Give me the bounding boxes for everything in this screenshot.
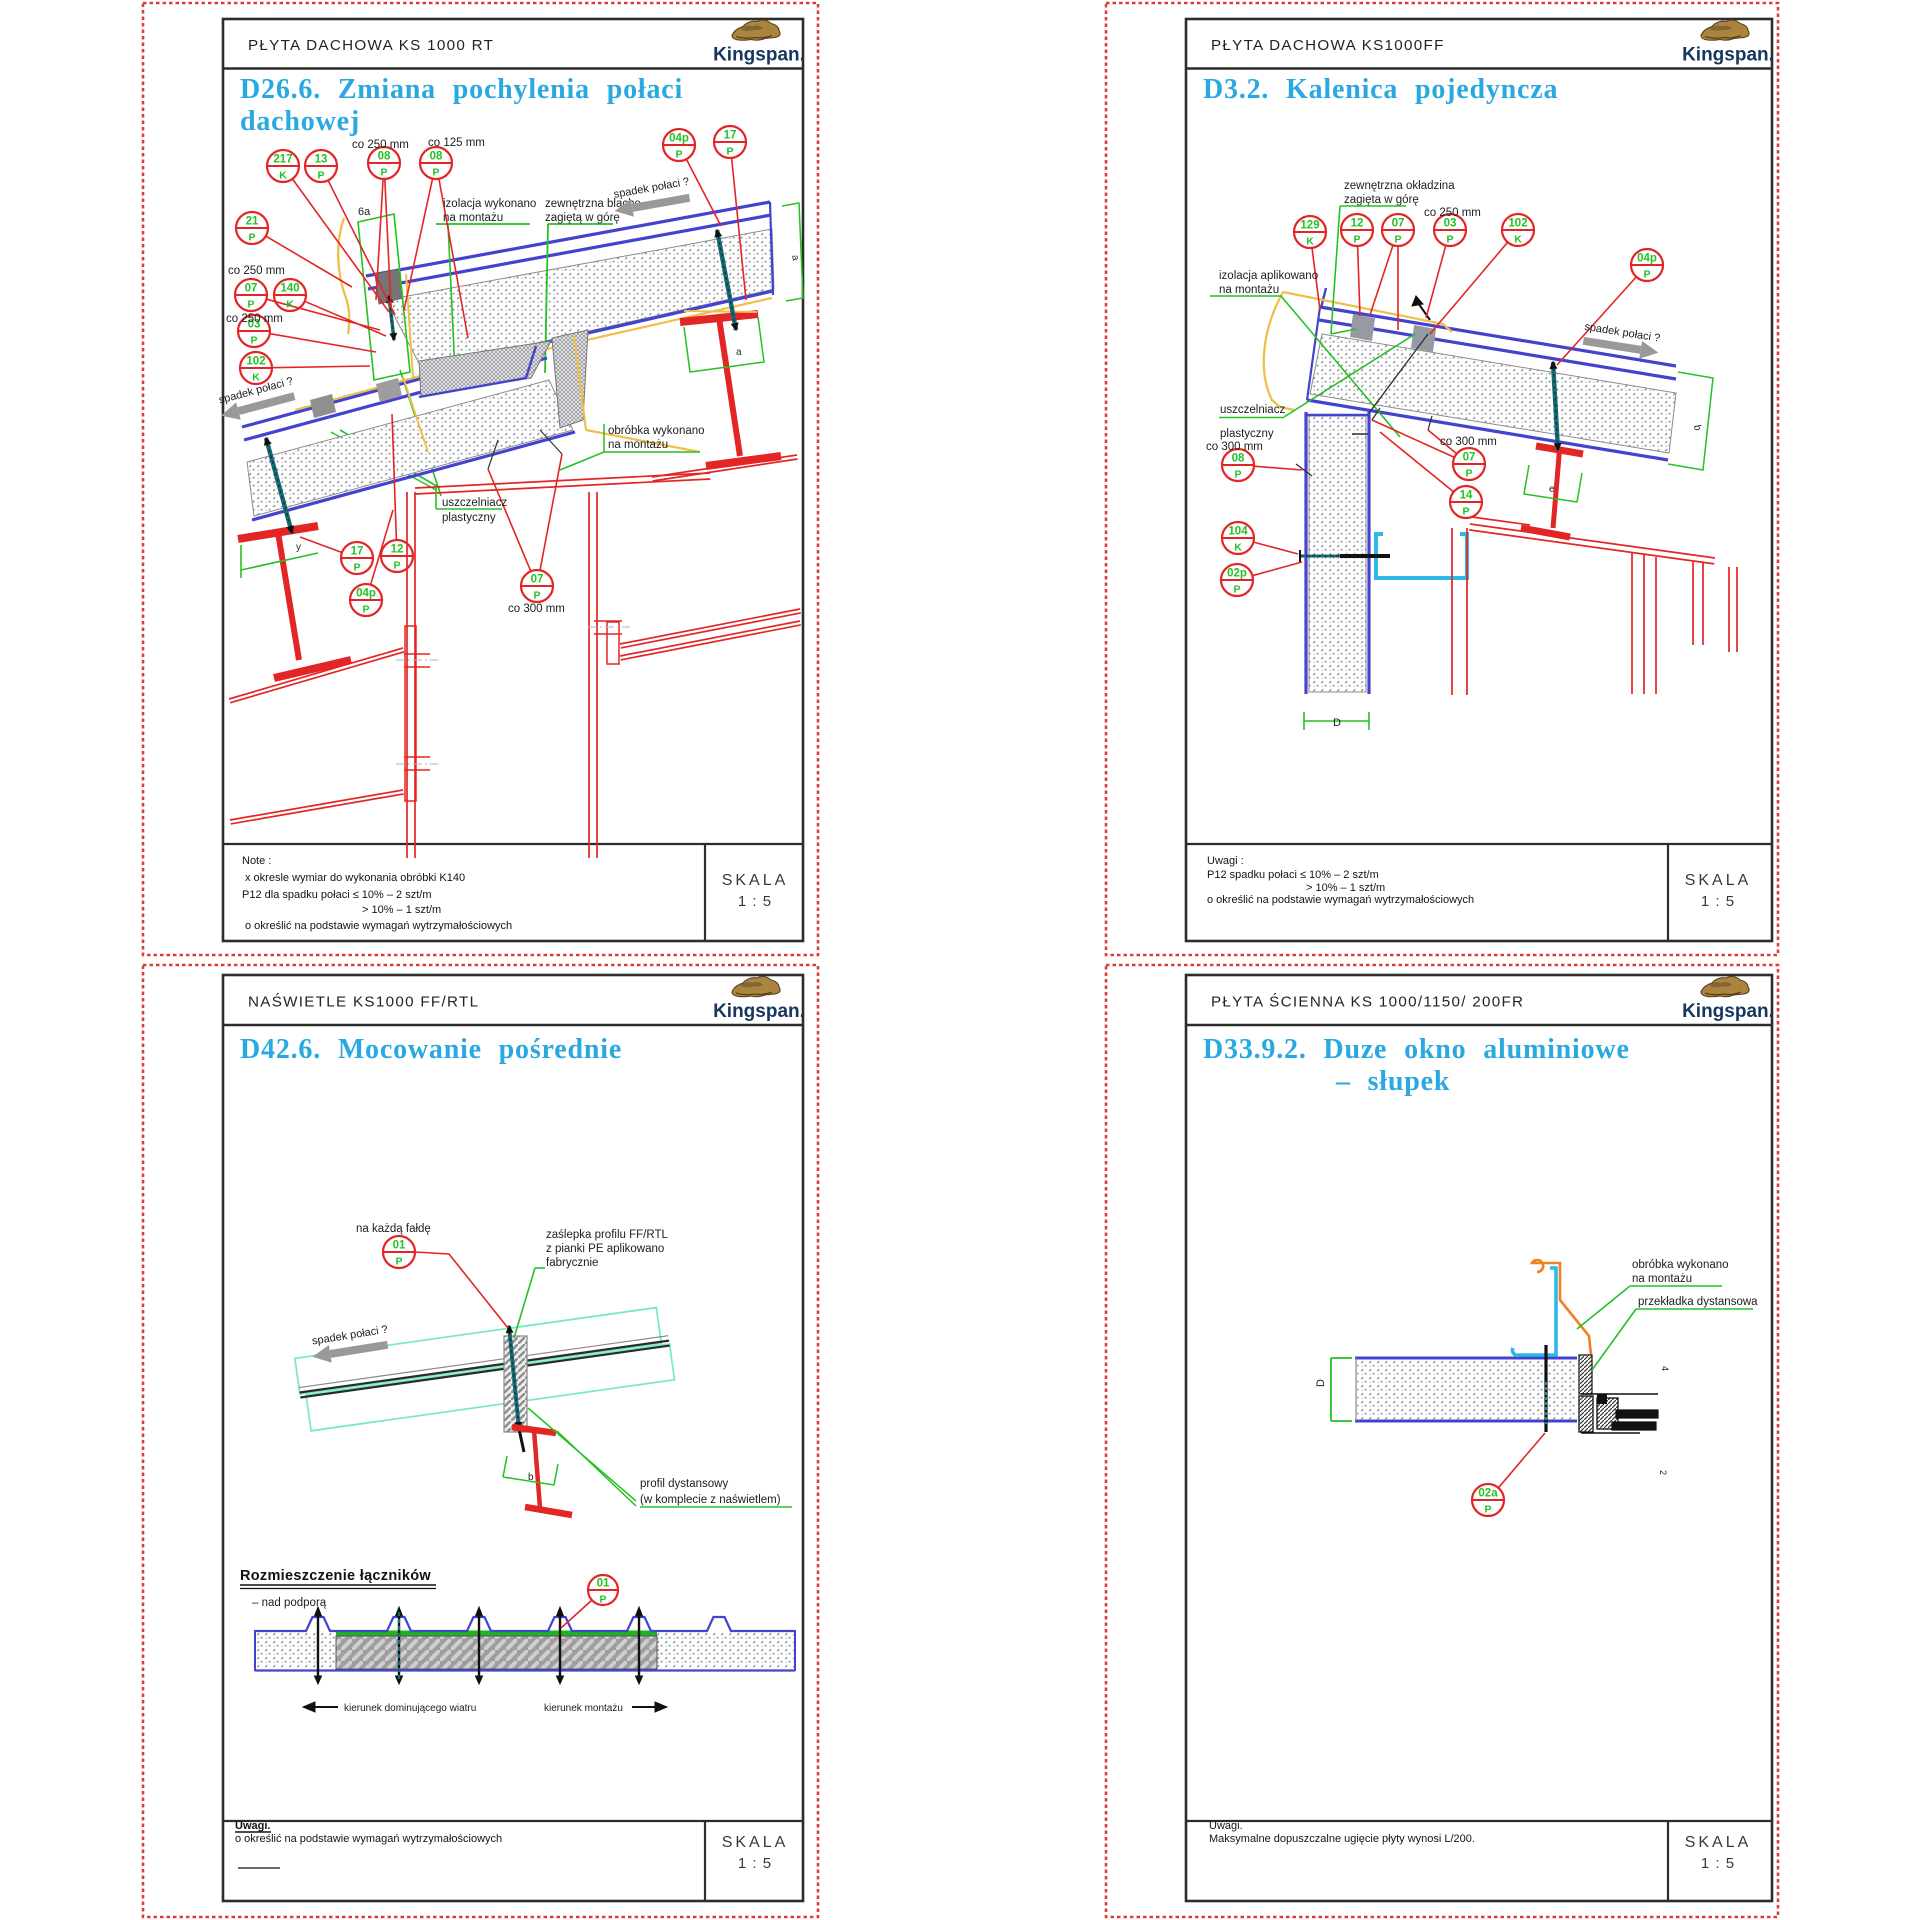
svg-text:– słupek: – słupek [1335, 1066, 1450, 1097]
svg-text:na montażu: na montażu [608, 439, 668, 451]
svg-text:04p: 04p [356, 588, 376, 600]
svg-text:zewnętrzna okładzina: zewnętrzna okładzina [1344, 180, 1455, 192]
svg-text:na każdą fałdę: na każdą fałdę [356, 1223, 431, 1235]
svg-text:17: 17 [724, 130, 737, 142]
svg-text:izolacja wykonano: izolacja wykonano [443, 198, 536, 210]
svg-text:P: P [1643, 269, 1650, 281]
svg-text:217: 217 [273, 154, 292, 166]
svg-text:(w komplecie z naświetlem): (w komplecie z naświetlem) [640, 1494, 781, 1506]
svg-text:SKALA: SKALA [1685, 872, 1752, 889]
svg-text:D: D [1333, 717, 1341, 729]
svg-text:NAŚWIETLE KS1000 FF/RTL: NAŚWIETLE KS1000 FF/RTL [248, 993, 479, 1011]
svg-text:Kingspan.: Kingspan. [1682, 1001, 1774, 1022]
svg-text:08: 08 [1232, 453, 1245, 465]
svg-text:4: 4 [1660, 1366, 1670, 1371]
svg-text:03: 03 [1444, 218, 1457, 230]
svg-text:uszczelniacz: uszczelniacz [442, 497, 507, 509]
svg-text:SKALA: SKALA [1685, 1834, 1752, 1851]
svg-text:obróbka wykonano: obróbka wykonano [608, 425, 705, 437]
svg-text:07: 07 [531, 574, 544, 586]
svg-text:co 300 mm: co 300 mm [1440, 436, 1497, 448]
svg-text:Uwagi.: Uwagi. [235, 1820, 270, 1832]
svg-text:Kingspan.: Kingspan. [713, 45, 805, 66]
svg-text:P: P [380, 167, 387, 179]
svg-text:102: 102 [246, 356, 265, 368]
svg-text:x okresle wymiar do wykonani: x okresle wymiar do wykonania obróbki K1… [245, 872, 465, 884]
svg-text:o określić na podstawie wyma: o określić na podstawie wymagań wytrzyma… [235, 1833, 502, 1845]
svg-text:Rozmieszczenie łączników: Rozmieszczenie łączników [240, 1568, 431, 1584]
svg-text:P: P [1394, 234, 1401, 246]
svg-text:zagiętą w górę: zagiętą w górę [545, 212, 620, 224]
svg-text:SKALA: SKALA [722, 872, 789, 889]
svg-text:> 10% – 1 szt/m: > 10% – 1 szt/m [362, 904, 441, 916]
svg-text:na montażu: na montażu [1219, 284, 1279, 296]
svg-text:Uwagi :: Uwagi : [1207, 855, 1244, 867]
svg-text:P: P [432, 167, 439, 179]
svg-text:y: y [296, 542, 301, 553]
svg-text:uszczelniacz: uszczelniacz [1220, 404, 1285, 416]
svg-text:co 250 mm: co 250 mm [226, 313, 283, 325]
svg-text:profil dystansowy: profil dystansowy [640, 1478, 728, 1490]
svg-text:P: P [1234, 469, 1241, 481]
svg-text:1 : 5: 1 : 5 [738, 893, 772, 910]
svg-text:> 10% – 1 szt/m: > 10% – 1 szt/m [1306, 882, 1385, 894]
svg-text:07: 07 [245, 283, 258, 295]
svg-text:Kingspan.: Kingspan. [1682, 45, 1774, 66]
svg-text:P: P [675, 149, 682, 161]
svg-text:D3.2. Kalenica pojedyncza: D3.2. Kalenica pojedyncza [1203, 74, 1558, 105]
svg-text:129: 129 [1300, 220, 1319, 232]
svg-text:e: e [1549, 484, 1555, 495]
svg-text:P12 spadku połaci ≤ 10% – 2 sz: P12 spadku połaci ≤ 10% – 2 szt/m [1207, 869, 1379, 881]
svg-text:P: P [1465, 468, 1472, 480]
svg-text:PŁYTA ŚCIENNA KS 1000/1150/ 20: PŁYTA ŚCIENNA KS 1000/1150/ 200FR [1211, 993, 1524, 1011]
svg-text:08: 08 [430, 151, 443, 163]
svg-text:dachowej: dachowej [240, 106, 360, 137]
svg-text:07: 07 [1392, 218, 1405, 230]
svg-text:P12 dla spadku połaci ≤ 10% –: P12 dla spadku połaci ≤ 10% – 2 szt/m [242, 889, 431, 901]
svg-text:P: P [247, 299, 254, 311]
svg-text:z pianki PE aplikowano: z pianki PE aplikowano [546, 1243, 664, 1255]
svg-text:b: b [528, 1472, 534, 1483]
svg-text:co 250 mm: co 250 mm [228, 265, 285, 277]
svg-text:21: 21 [246, 216, 259, 228]
svg-text:P: P [317, 170, 324, 182]
svg-text:2: 2 [1658, 1470, 1668, 1475]
svg-text:D: D [1315, 1379, 1327, 1387]
svg-text:P: P [1484, 1504, 1491, 1516]
svg-text:K: K [286, 299, 294, 311]
svg-text:P: P [362, 604, 369, 616]
svg-text:zagięta w górę: zagięta w górę [1344, 194, 1419, 206]
svg-text:12: 12 [1351, 218, 1364, 230]
svg-text:D42.6. Mocowanie pośrednie: D42.6. Mocowanie pośrednie [240, 1034, 622, 1065]
svg-text:P: P [599, 1594, 606, 1606]
svg-text:13: 13 [315, 154, 328, 166]
svg-text:P: P [533, 590, 540, 602]
svg-text:o określić na podstawie wyma: o określić na podstawie wymagań wytrzyma… [1207, 894, 1474, 906]
svg-text:P: P [393, 560, 400, 572]
svg-text:D26.6. Zmiana pochylenia po: D26.6. Zmiana pochylenia połaci [240, 74, 683, 105]
svg-text:– nad podporą: – nad podporą [252, 1597, 327, 1609]
svg-text:102: 102 [1508, 218, 1527, 230]
svg-text:04p: 04p [1637, 253, 1657, 265]
svg-text:o określić na podstawie wyma: o określić na podstawie wymagań wytrzyma… [245, 920, 512, 932]
svg-text:K: K [1306, 236, 1314, 248]
svg-text:01: 01 [393, 1240, 406, 1252]
svg-text:07: 07 [1463, 452, 1476, 464]
svg-text:plastyczny: plastyczny [1220, 428, 1274, 440]
svg-text:D33.9.2. Duze okno aluminio: D33.9.2. Duze okno aluminiowe [1203, 1034, 1630, 1065]
svg-text:kierunek montażu: kierunek montażu [544, 1703, 623, 1714]
svg-text:12: 12 [391, 544, 404, 556]
svg-text:co 250 mm: co 250 mm [1424, 207, 1481, 219]
svg-text:kierunek dominującego wiatru: kierunek dominującego wiatru [344, 1703, 476, 1714]
svg-text:Maksymalne dopuszczalne ugięci: Maksymalne dopuszczalne ugięcie płyty wy… [1209, 1833, 1475, 1845]
svg-text:01: 01 [597, 1578, 610, 1590]
svg-text:08: 08 [378, 151, 391, 163]
svg-text:04p: 04p [669, 133, 689, 145]
svg-text:przekładka dystansowa: przekładka dystansowa [1638, 1296, 1758, 1308]
svg-text:K: K [279, 170, 287, 182]
svg-text:co 125 mm: co 125 mm [428, 137, 485, 149]
svg-text:Uwagi.: Uwagi. [1209, 1820, 1243, 1832]
svg-text:izolacja aplikowano: izolacja aplikowano [1219, 270, 1318, 282]
svg-text:K: K [1234, 542, 1242, 554]
svg-text:1 : 5: 1 : 5 [1701, 893, 1735, 910]
svg-text:02p: 02p [1227, 568, 1247, 580]
svg-text:co 300 mm: co 300 mm [1206, 441, 1263, 453]
svg-text:na montażu: na montażu [1632, 1273, 1692, 1285]
svg-text:P: P [248, 232, 255, 244]
svg-text:Kingspan.: Kingspan. [713, 1001, 805, 1022]
svg-text:P: P [353, 562, 360, 574]
svg-text:Note :: Note : [242, 855, 271, 867]
svg-text:K: K [1514, 234, 1522, 246]
svg-text:PŁYTA DACHOWA KS 1000 RT: PŁYTA DACHOWA KS 1000 RT [248, 37, 494, 54]
svg-text:P: P [1353, 234, 1360, 246]
svg-text:K: K [252, 372, 260, 384]
svg-text:P: P [726, 146, 733, 158]
svg-text:6a: 6a [358, 206, 371, 218]
svg-text:co 250 mm: co 250 mm [352, 139, 409, 151]
svg-text:104: 104 [1228, 526, 1248, 538]
svg-text:plastyczny: plastyczny [442, 512, 496, 524]
svg-text:zaślepka profilu FF/RTL: zaślepka profilu FF/RTL [546, 1229, 668, 1241]
svg-text:P: P [1462, 506, 1469, 518]
svg-text:1 : 5: 1 : 5 [1701, 1855, 1735, 1872]
svg-text:fabrycznie: fabrycznie [546, 1257, 598, 1269]
svg-text:P: P [395, 1256, 402, 1268]
svg-text:obróbka wykonano: obróbka wykonano [1632, 1259, 1729, 1271]
svg-text:140: 140 [280, 283, 299, 295]
svg-text:1 : 5: 1 : 5 [738, 1855, 772, 1872]
svg-text:SKALA: SKALA [722, 1834, 789, 1851]
svg-text:02a: 02a [1478, 1488, 1498, 1500]
svg-text:14: 14 [1460, 490, 1473, 502]
svg-text:PŁYTA DACHOWA KS1000FF: PŁYTA DACHOWA KS1000FF [1211, 37, 1445, 54]
svg-text:na montażu: na montażu [443, 212, 503, 224]
svg-text:a: a [736, 347, 742, 358]
svg-text:P: P [250, 335, 257, 347]
svg-text:P: P [1233, 584, 1240, 596]
svg-text:17: 17 [351, 546, 364, 558]
svg-text:P: P [1446, 234, 1453, 246]
svg-text:co 300 mm: co 300 mm [508, 603, 565, 615]
